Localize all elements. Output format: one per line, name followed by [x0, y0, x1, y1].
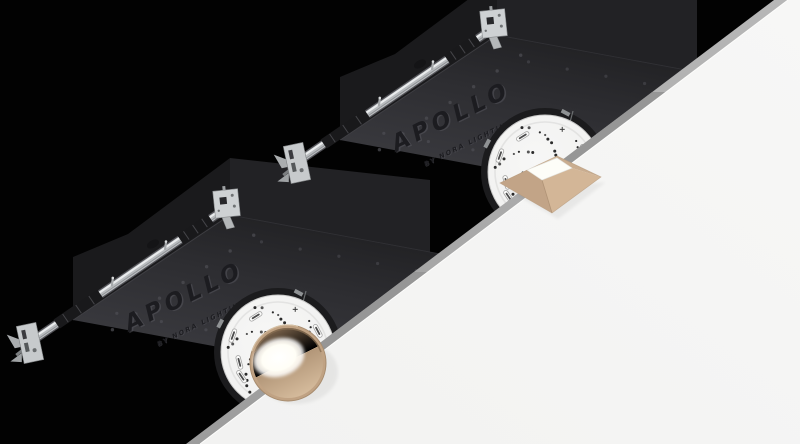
plate-dimple — [115, 312, 118, 315]
flange-perforation — [544, 134, 546, 136]
plate-dimple — [566, 67, 569, 70]
plate-dimple — [382, 132, 385, 135]
flange-perforation — [260, 331, 263, 334]
plate-dimple — [643, 82, 646, 85]
flange-perforation — [283, 321, 286, 324]
plate-dimple — [378, 148, 381, 151]
flange-perforation — [261, 306, 264, 309]
flange-perforation — [272, 311, 274, 313]
flange-perforation — [227, 346, 230, 349]
plate-dimple — [205, 265, 208, 268]
flange-perforation — [527, 151, 530, 154]
bar-screw — [112, 278, 113, 286]
flange-perforation — [308, 320, 310, 322]
bracket-screw — [489, 6, 492, 10]
bar-screw — [432, 62, 433, 70]
plate-dimple — [376, 262, 379, 265]
plate-dimple — [495, 69, 498, 72]
flange-perforation — [245, 384, 248, 387]
flange-perforation — [244, 373, 247, 376]
plate-dimple — [471, 148, 474, 151]
flange-perforation — [498, 162, 501, 165]
flange-perforation — [310, 326, 312, 328]
plate-dimple — [527, 60, 530, 63]
flange-perforation — [277, 314, 279, 316]
flange-perforation — [247, 363, 249, 365]
flange-perforation — [231, 342, 234, 345]
flange-perforation — [513, 153, 515, 155]
bar-screw — [165, 242, 166, 250]
flange-perforation — [539, 131, 541, 133]
bar-screw-head — [165, 240, 168, 243]
flange-perforation — [503, 157, 506, 160]
product-render: APOLLOAPOLLOBY NORA LIGHTINGBY NORA LIGH… — [0, 0, 800, 444]
flange-perforation — [253, 306, 256, 309]
plate-dimple — [337, 255, 340, 258]
flange-perforation — [236, 337, 239, 340]
flange-perforation — [246, 333, 248, 335]
flange-perforation — [494, 166, 497, 169]
bar-screw — [379, 98, 380, 106]
plate-dimple — [519, 54, 522, 57]
flange-perforation — [279, 318, 282, 321]
flange-perforation — [546, 138, 549, 141]
plate-dimple — [204, 328, 207, 331]
plate-dimple — [111, 328, 114, 331]
flange-perforation — [520, 126, 523, 129]
flange-perforation — [251, 331, 253, 333]
bracket-screw — [222, 186, 225, 190]
flange-perforation — [528, 126, 531, 129]
bar-screw-head — [379, 97, 382, 100]
plate-dimple — [472, 85, 475, 88]
flange-perforation — [550, 141, 553, 144]
flange-perforation — [531, 151, 534, 154]
flange-perforation — [518, 151, 520, 153]
bracket-square-hole — [486, 17, 494, 25]
bracket-square-hole — [219, 197, 227, 205]
render-viewport: APOLLOAPOLLOBY NORA LIGHTINGBY NORA LIGH… — [0, 0, 800, 444]
bar-screw-head — [112, 277, 115, 280]
plate-dimple — [604, 75, 607, 78]
plate-dimple — [252, 234, 255, 237]
flange-perforation — [553, 150, 556, 153]
plate-dimple — [260, 240, 263, 243]
plate-dimple — [299, 247, 302, 250]
plate-dimple — [228, 249, 231, 252]
flange-perforation — [248, 391, 251, 394]
flange-perforation — [575, 140, 577, 142]
bar-screw-head — [432, 60, 435, 63]
